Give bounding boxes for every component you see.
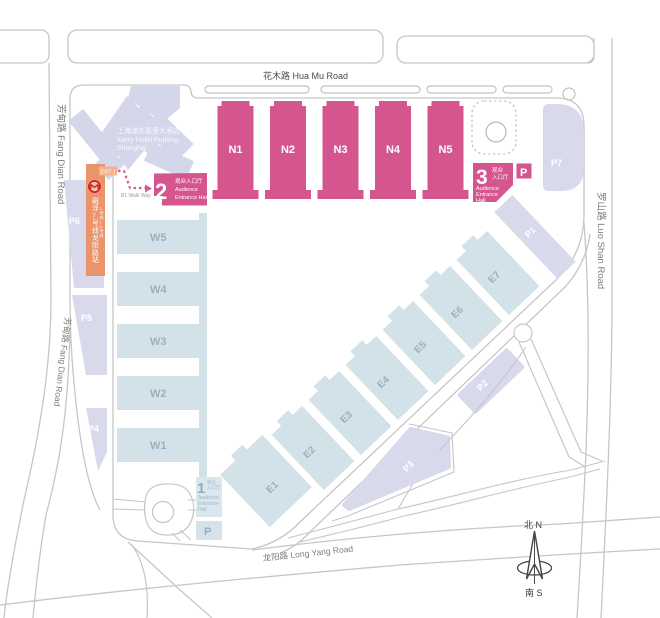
svg-text:Shanghai: Shanghai <box>117 145 147 152</box>
svg-text:Audience: Audience <box>175 187 198 193</box>
svg-text:W1: W1 <box>150 440 167 452</box>
svg-text:N3: N3 <box>333 144 347 156</box>
svg-text:芳甸路 Fang Dian Road: 芳甸路 Fang Dian Road <box>55 104 67 204</box>
svg-text:P4: P4 <box>88 424 99 434</box>
svg-text:上海浦东嘉里大酒店: 上海浦东嘉里大酒店 <box>117 126 180 135</box>
svg-text:B1 Walk Way: B1 Walk Way <box>121 193 151 199</box>
svg-text:Hall: Hall <box>198 507 207 513</box>
svg-text:W3: W3 <box>150 336 167 348</box>
svg-text:南 S: 南 S <box>525 587 543 598</box>
svg-text:P6: P6 <box>69 216 80 226</box>
svg-text:Entrance Hall: Entrance Hall <box>175 195 208 201</box>
svg-text:罗山路 Luo Shan Road: 罗山路 Luo Shan Road <box>595 192 607 289</box>
svg-text:N4: N4 <box>386 144 401 156</box>
svg-text:北 N: 北 N <box>524 520 542 530</box>
svg-text:P: P <box>204 526 211 538</box>
svg-text:观众入口厅: 观众入口厅 <box>175 178 203 185</box>
svg-text:Hall: Hall <box>476 198 485 204</box>
svg-text:P7: P7 <box>551 158 562 168</box>
svg-text:N5: N5 <box>438 144 452 156</box>
svg-text:磁浮7号线龙阳路站: 磁浮7号线龙阳路站 <box>92 196 99 264</box>
svg-text:Kerry Hotel Pudong,: Kerry Hotel Pudong, <box>117 137 180 144</box>
svg-text:W2: W2 <box>150 388 167 400</box>
svg-text:N2: N2 <box>281 144 295 156</box>
svg-text:EXIT 1: EXIT 1 <box>101 169 116 175</box>
svg-text:P5: P5 <box>81 313 92 323</box>
svg-text:P: P <box>520 167 527 179</box>
svg-text:花木路 Hua Mu Road: 花木路 Hua Mu Road <box>263 70 348 81</box>
svg-text:W4: W4 <box>150 284 167 296</box>
svg-text:入口厅: 入口厅 <box>492 174 509 181</box>
svg-text:W5: W5 <box>150 232 167 244</box>
svg-text:N1: N1 <box>228 144 242 156</box>
svg-text:2: 2 <box>155 179 167 204</box>
svg-text:观众: 观众 <box>492 167 504 174</box>
